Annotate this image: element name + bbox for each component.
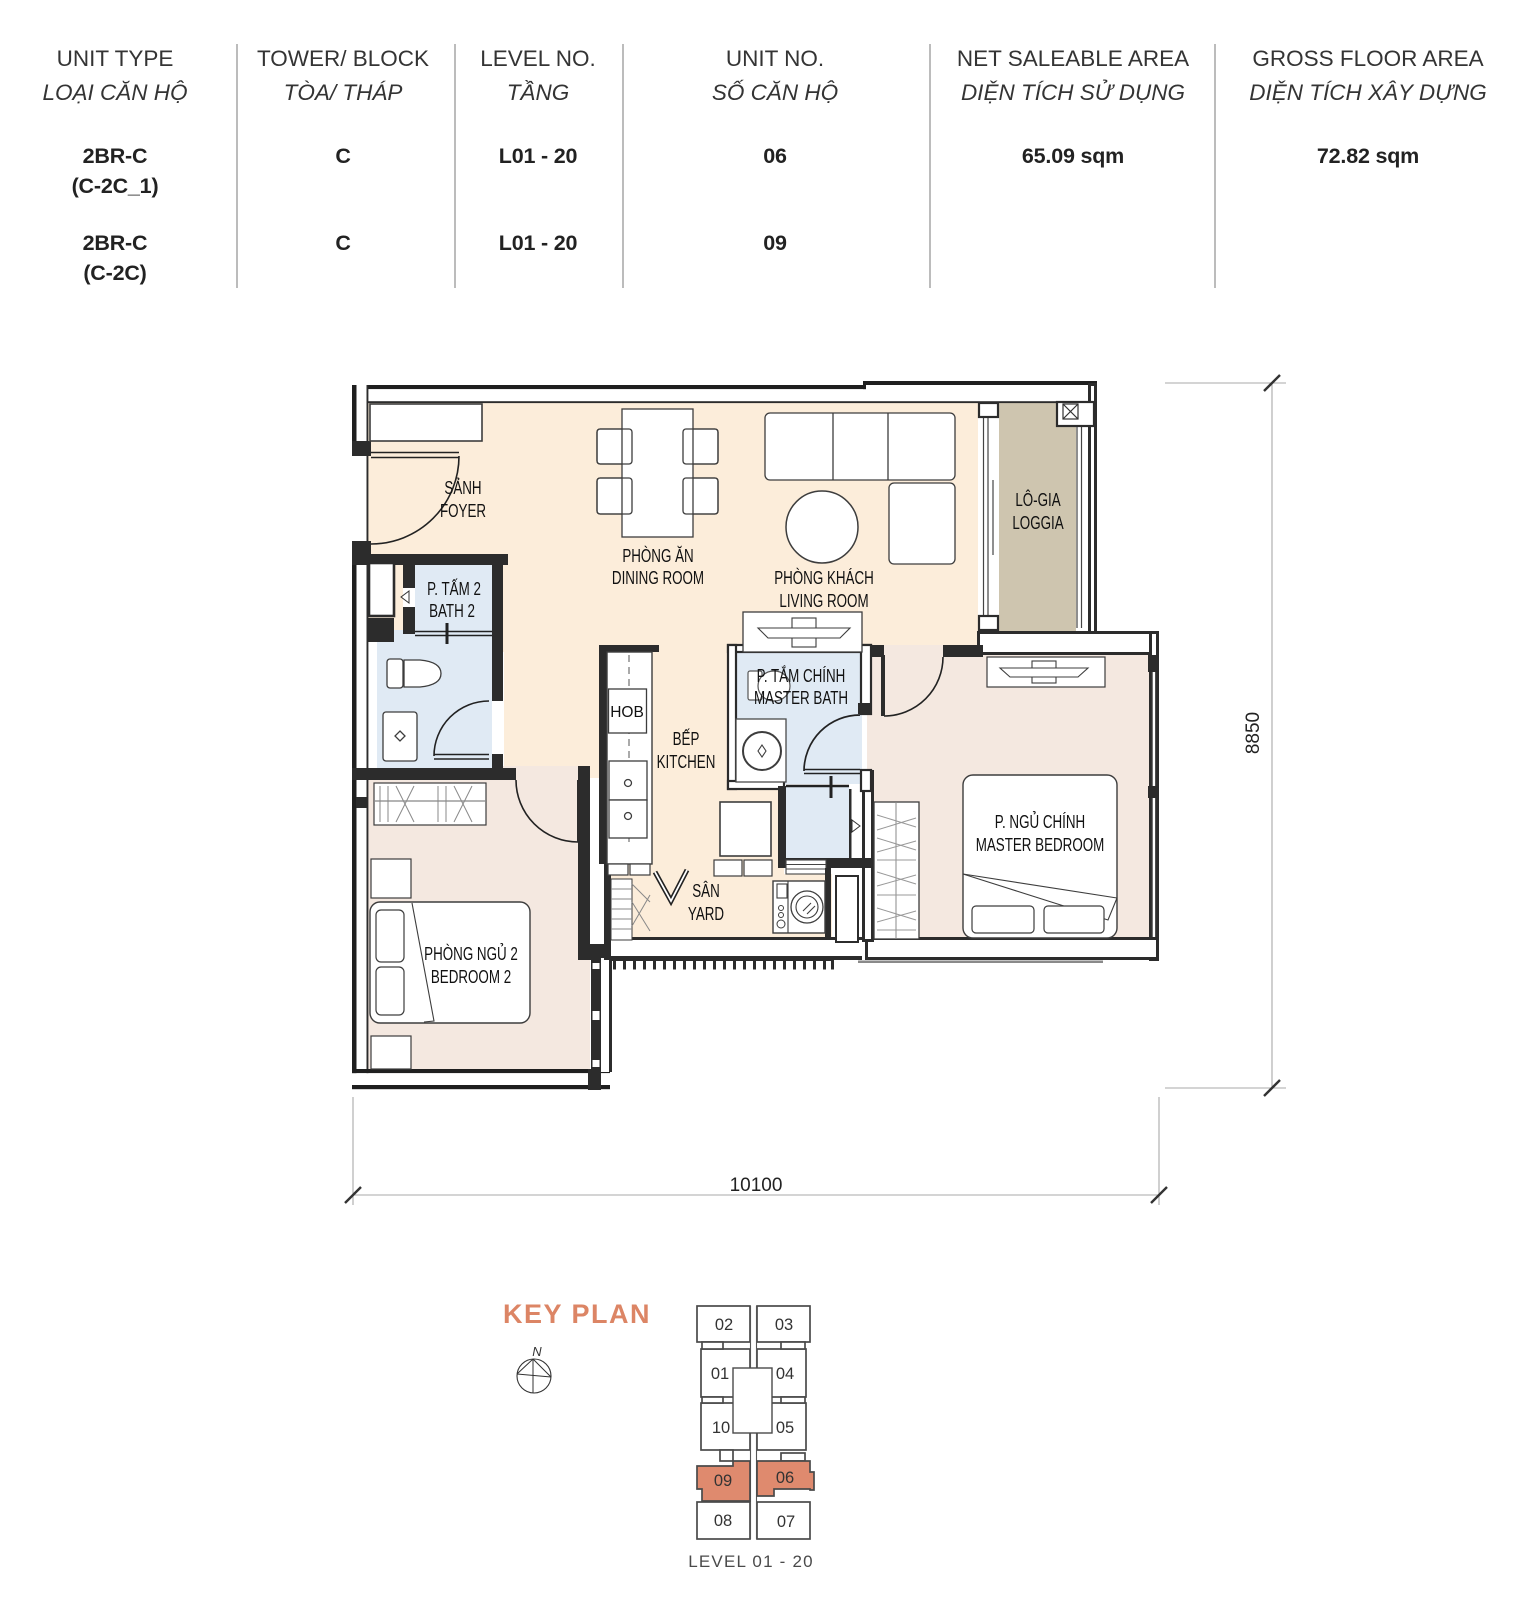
svg-text:LIVING ROOM: LIVING ROOM xyxy=(779,591,868,612)
svg-text:06: 06 xyxy=(763,144,787,168)
svg-text:N: N xyxy=(532,1344,542,1359)
svg-text:2BR-C: 2BR-C xyxy=(83,231,148,255)
svg-text:72.82 sqm: 72.82 sqm xyxy=(1317,144,1419,168)
svg-text:C: C xyxy=(335,144,350,168)
svg-text:DINING ROOM: DINING ROOM xyxy=(612,568,704,589)
svg-text:P. TẤM 2: P. TẤM 2 xyxy=(427,578,481,600)
svg-text:L01 - 20: L01 - 20 xyxy=(499,144,578,168)
svg-text:PHÒNG ĂN: PHÒNG ĂN xyxy=(622,545,693,567)
svg-text:LEVEL NO.: LEVEL NO. xyxy=(480,46,595,71)
svg-text:BẾP: BẾP xyxy=(673,728,700,750)
svg-text:MASTER BATH: MASTER BATH xyxy=(754,688,848,709)
svg-text:03: 03 xyxy=(775,1316,793,1334)
svg-text:04: 04 xyxy=(776,1365,794,1383)
svg-text:LOGGIA: LOGGIA xyxy=(1012,513,1063,534)
svg-text:BEDROOM 2: BEDROOM 2 xyxy=(431,967,511,988)
svg-text:09: 09 xyxy=(763,231,787,255)
svg-text:10100: 10100 xyxy=(730,1175,783,1196)
svg-text:KITCHEN: KITCHEN xyxy=(657,752,716,773)
svg-text:05: 05 xyxy=(776,1419,794,1437)
svg-text:FOYER: FOYER xyxy=(440,501,486,522)
svg-text:UNIT NO.: UNIT NO. xyxy=(726,46,824,71)
svg-text:LOẠI CĂN HỘ: LOẠI CĂN HỘ xyxy=(42,80,187,105)
svg-text:(C-2C): (C-2C) xyxy=(83,261,146,285)
svg-text:2BR-C: 2BR-C xyxy=(83,144,148,168)
svg-text:TOWER/ BLOCK: TOWER/ BLOCK xyxy=(257,46,429,71)
svg-text:P. TẮM CHÍNH: P. TẮM CHÍNH xyxy=(757,665,846,687)
svg-text:PHÒNG NGỦ 2: PHÒNG NGỦ 2 xyxy=(424,943,518,965)
svg-text:MASTER BEDROOM: MASTER BEDROOM xyxy=(976,835,1105,856)
svg-text:NET SALEABLE AREA: NET SALEABLE AREA xyxy=(957,46,1189,71)
svg-text:01: 01 xyxy=(711,1365,729,1383)
svg-text:10: 10 xyxy=(712,1419,730,1437)
svg-text:L01 - 20: L01 - 20 xyxy=(499,231,578,255)
svg-text:07: 07 xyxy=(777,1513,795,1531)
svg-text:(C-2C_1): (C-2C_1) xyxy=(72,174,159,198)
svg-text:TẦNG: TẦNG xyxy=(507,80,570,105)
svg-text:8850: 8850 xyxy=(1243,712,1264,754)
svg-text:BATH 2: BATH 2 xyxy=(429,601,475,622)
svg-text:TÒA/ THÁP: TÒA/ THÁP xyxy=(284,80,403,105)
svg-text:SỐ CĂN HỘ: SỐ CĂN HỘ xyxy=(712,80,838,105)
svg-text:LÔ-GIA: LÔ-GIA xyxy=(1015,489,1061,511)
svg-text:DIỆN TÍCH XÂY DỰNG: DIỆN TÍCH XÂY DỰNG xyxy=(1249,80,1486,105)
svg-text:C: C xyxy=(335,231,350,255)
svg-text:06: 06 xyxy=(776,1469,794,1487)
svg-text:KEY PLAN: KEY PLAN xyxy=(503,1299,651,1329)
svg-text:09: 09 xyxy=(714,1472,732,1490)
svg-text:HOB: HOB xyxy=(610,704,644,721)
svg-text:08: 08 xyxy=(714,1512,732,1530)
svg-text:PHÒNG KHÁCH: PHÒNG KHÁCH xyxy=(774,567,874,589)
svg-text:UNIT TYPE: UNIT TYPE xyxy=(57,46,174,71)
svg-text:SÂN: SÂN xyxy=(692,880,720,902)
svg-text:LEVEL 01 - 20: LEVEL 01 - 20 xyxy=(688,1552,814,1571)
svg-text:DIỆN TÍCH SỬ DỤNG: DIỆN TÍCH SỬ DỤNG xyxy=(961,79,1185,105)
svg-text:GROSS FLOOR AREA: GROSS FLOOR AREA xyxy=(1252,46,1483,71)
svg-text:P. NGỦ CHÍNH: P. NGỦ CHÍNH xyxy=(995,811,1085,833)
svg-text:SẢNH: SẢNH xyxy=(444,477,481,499)
svg-text:02: 02 xyxy=(715,1316,733,1334)
svg-text:YARD: YARD xyxy=(688,904,724,925)
svg-text:65.09 sqm: 65.09 sqm xyxy=(1022,144,1124,168)
